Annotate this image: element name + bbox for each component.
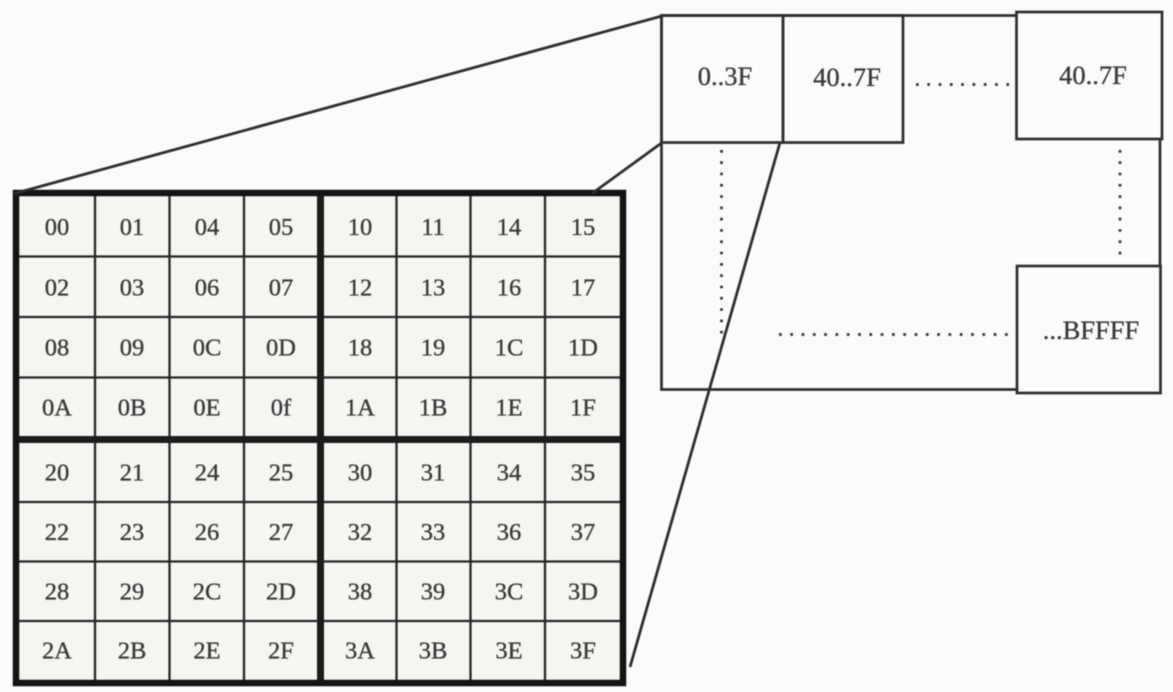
svg-text:2B: 2B	[118, 638, 147, 665]
svg-text:05: 05	[269, 214, 294, 241]
svg-text:32: 32	[348, 519, 373, 546]
svg-text:0A: 0A	[42, 395, 72, 422]
svg-text:26: 26	[195, 519, 220, 546]
svg-text:2C: 2C	[193, 579, 222, 606]
svg-text:40..7F: 40..7F	[1059, 60, 1127, 90]
svg-text:...BFFFF: ...BFFFF	[1043, 315, 1140, 345]
svg-text:39: 39	[421, 579, 446, 606]
svg-text:2F: 2F	[268, 638, 294, 665]
svg-text:0..3F: 0..3F	[698, 61, 753, 91]
svg-text:0C: 0C	[193, 335, 222, 362]
svg-text:28: 28	[45, 579, 70, 606]
svg-text:1F: 1F	[570, 395, 596, 422]
svg-text:04: 04	[195, 214, 220, 241]
svg-text:3D: 3D	[568, 579, 598, 606]
svg-text:0f: 0f	[271, 395, 292, 422]
svg-text:3F: 3F	[570, 638, 596, 665]
svg-text:0B: 0B	[118, 395, 147, 422]
svg-text:35: 35	[571, 460, 596, 487]
svg-text:00: 00	[45, 214, 70, 241]
svg-text:3A: 3A	[345, 638, 375, 665]
svg-text:08: 08	[45, 335, 70, 362]
svg-text:19: 19	[421, 335, 446, 362]
svg-text:11: 11	[421, 214, 445, 241]
svg-text:3B: 3B	[419, 638, 448, 665]
svg-text:2E: 2E	[193, 638, 220, 665]
svg-text:02: 02	[45, 275, 70, 302]
svg-text:1D: 1D	[568, 335, 598, 362]
svg-text:09: 09	[120, 335, 145, 362]
svg-text:25: 25	[269, 460, 294, 487]
svg-text:03: 03	[120, 275, 145, 302]
svg-text:0E: 0E	[193, 395, 220, 422]
svg-text:06: 06	[195, 275, 220, 302]
svg-text:24: 24	[195, 460, 220, 487]
svg-text:16: 16	[497, 275, 522, 302]
svg-text:07: 07	[269, 275, 294, 302]
svg-text:3C: 3C	[495, 579, 524, 606]
svg-text:12: 12	[348, 275, 373, 302]
svg-text:37: 37	[571, 519, 596, 546]
svg-text:20: 20	[45, 460, 70, 487]
svg-text:01: 01	[120, 214, 145, 241]
svg-text:13: 13	[421, 275, 446, 302]
svg-text:22: 22	[45, 519, 70, 546]
svg-text:1C: 1C	[495, 335, 524, 362]
svg-text:15: 15	[571, 214, 596, 241]
svg-text:29: 29	[120, 579, 145, 606]
svg-text:33: 33	[421, 519, 446, 546]
svg-text:27: 27	[269, 519, 294, 546]
svg-text:10: 10	[348, 214, 373, 241]
svg-text:14: 14	[497, 214, 522, 241]
svg-text:23: 23	[120, 519, 145, 546]
svg-text:36: 36	[497, 519, 522, 546]
svg-text:31: 31	[421, 460, 446, 487]
svg-text:3E: 3E	[495, 638, 522, 665]
svg-text:18: 18	[348, 335, 373, 362]
svg-text:0D: 0D	[266, 335, 296, 362]
svg-text:38: 38	[348, 579, 373, 606]
svg-text:1B: 1B	[419, 395, 448, 422]
svg-text:34: 34	[497, 460, 522, 487]
svg-text:30: 30	[348, 460, 373, 487]
svg-text:2D: 2D	[266, 579, 296, 606]
svg-text:1A: 1A	[345, 395, 375, 422]
svg-text:21: 21	[120, 460, 145, 487]
svg-text:17: 17	[571, 275, 596, 302]
svg-text:1E: 1E	[495, 395, 522, 422]
svg-text:2A: 2A	[42, 638, 72, 665]
svg-text:40..7F: 40..7F	[813, 62, 881, 92]
